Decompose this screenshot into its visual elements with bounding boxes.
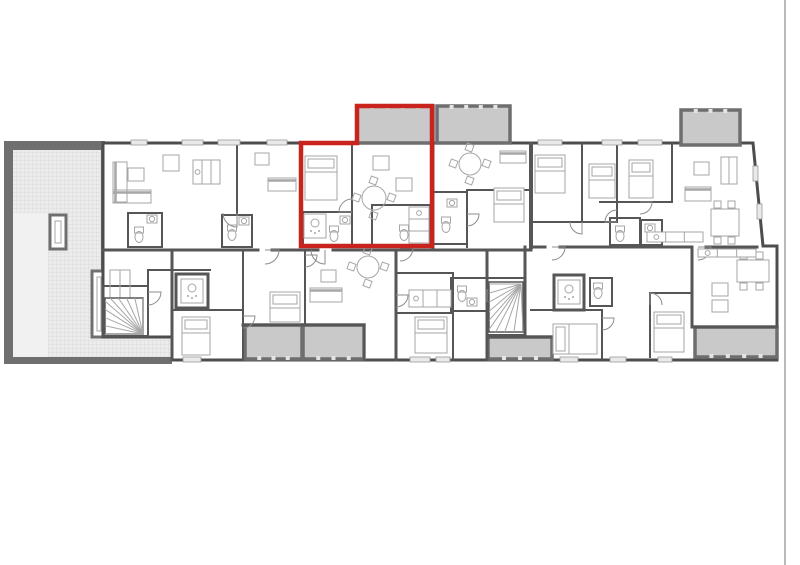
shower-drop <box>568 298 570 300</box>
balcony-railing-post <box>502 356 506 360</box>
shower-drop <box>572 296 574 298</box>
balcony-railing-post <box>479 105 483 109</box>
window <box>610 357 626 362</box>
balcony-railing-post <box>257 356 261 360</box>
balcony-railing-post <box>709 354 713 358</box>
balcony-railing-post <box>723 109 727 113</box>
balcony <box>357 106 433 143</box>
bed <box>654 312 684 352</box>
shower-drop <box>187 295 189 297</box>
balcony-railing-post <box>694 109 698 113</box>
balcony <box>245 325 302 359</box>
terrace-lower-area <box>13 213 48 357</box>
bed <box>494 188 524 222</box>
bed <box>553 324 597 354</box>
bed <box>589 164 615 198</box>
balcony-railing-post <box>742 354 746 358</box>
balcony-railing-post <box>464 105 468 109</box>
kitchen-counter <box>409 290 451 307</box>
balcony <box>695 327 777 357</box>
window <box>658 357 672 362</box>
window <box>436 357 450 362</box>
balcony <box>681 110 740 145</box>
bed <box>305 156 337 200</box>
kitchen-counter <box>193 160 220 184</box>
window <box>753 166 758 181</box>
window <box>267 140 287 145</box>
balcony <box>488 337 552 359</box>
window <box>602 140 622 145</box>
window <box>638 140 662 145</box>
balcony-railing-post <box>518 356 522 360</box>
window <box>757 204 762 219</box>
shower-drop <box>564 296 566 298</box>
balcony-railing-post <box>493 105 497 109</box>
bed <box>415 317 447 353</box>
shower-drop <box>191 297 193 299</box>
window <box>560 357 578 362</box>
bed <box>182 317 210 355</box>
balcony-railing-post <box>272 356 276 360</box>
terrace-extension-wall <box>101 357 172 364</box>
balcony-railing-post <box>286 356 290 360</box>
balcony-railing-post <box>347 356 351 360</box>
bed <box>629 160 653 198</box>
balcony <box>437 106 510 143</box>
window <box>131 140 147 145</box>
shower-drop <box>195 295 197 297</box>
shower-drop <box>318 230 320 232</box>
balcony-railing-post <box>709 109 713 113</box>
terrace-extension <box>101 337 172 357</box>
window <box>183 357 201 362</box>
balcony <box>303 325 364 359</box>
balcony-railing-post <box>726 354 730 358</box>
kitchen-counter <box>698 249 756 257</box>
balcony-railing-post <box>759 354 763 358</box>
window <box>410 357 430 362</box>
terrace-window <box>50 215 66 249</box>
bed <box>270 292 300 322</box>
window <box>538 140 562 145</box>
floor-plan <box>0 0 800 565</box>
balcony-railing-post <box>332 356 336 360</box>
shower-drop <box>310 230 312 232</box>
shower-drop <box>314 232 316 234</box>
window <box>218 140 240 145</box>
window <box>182 140 203 145</box>
floorplan-page <box>0 0 800 565</box>
balcony-railing-post <box>316 356 320 360</box>
balcony-railing-post <box>450 105 454 109</box>
kitchen-counter <box>409 207 429 243</box>
kitchen-counter <box>647 232 703 242</box>
bed <box>535 155 565 193</box>
balcony-railing-post <box>534 356 538 360</box>
